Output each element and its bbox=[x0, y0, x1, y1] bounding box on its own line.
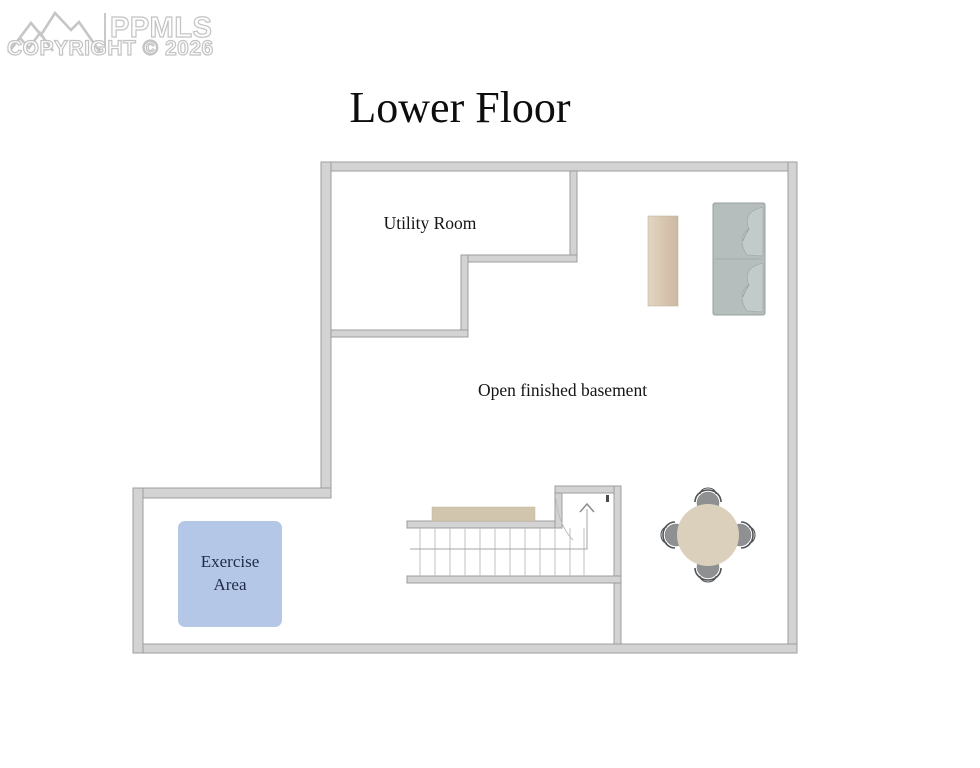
wall-exterior-top bbox=[321, 162, 797, 171]
wall-stairs-bottom bbox=[407, 576, 621, 583]
utility-room-label: Utility Room bbox=[340, 213, 520, 234]
basement-label: Open finished basement bbox=[450, 380, 675, 401]
wall-utility-right bbox=[570, 171, 577, 262]
exercise-area-label-line2: Area bbox=[213, 574, 246, 597]
wall-stairs-top bbox=[407, 521, 562, 528]
wall-utility-step-h bbox=[461, 255, 577, 262]
console-table-icon bbox=[648, 216, 678, 306]
sofa-icon bbox=[713, 203, 765, 315]
stair-treads bbox=[420, 528, 584, 576]
round-dining-table-icon bbox=[677, 504, 739, 566]
exercise-area-label-line1: Exercise bbox=[201, 551, 260, 574]
wall-utility-step-v bbox=[461, 255, 468, 336]
wall-exterior-step bbox=[133, 488, 331, 498]
wall-stair-landing-top bbox=[555, 486, 621, 493]
wall-utility-bottom bbox=[331, 330, 468, 337]
wall-interior-vertical bbox=[614, 486, 621, 644]
stair-ledge bbox=[432, 507, 535, 521]
exercise-area-mat: Exercise Area bbox=[178, 521, 282, 627]
wall-exterior-left-lower bbox=[133, 488, 143, 653]
wall-exterior-right bbox=[788, 162, 797, 653]
wall-exterior-bottom bbox=[133, 644, 797, 653]
staircase-up-icon bbox=[410, 495, 609, 576]
wall-exterior-left-upper bbox=[321, 162, 331, 498]
floor-plan-page: PPMLS COPYRIGHT © 2026 Lower Floor bbox=[0, 0, 980, 768]
stair-landing-mark bbox=[606, 495, 609, 502]
dining-set bbox=[661, 488, 755, 582]
